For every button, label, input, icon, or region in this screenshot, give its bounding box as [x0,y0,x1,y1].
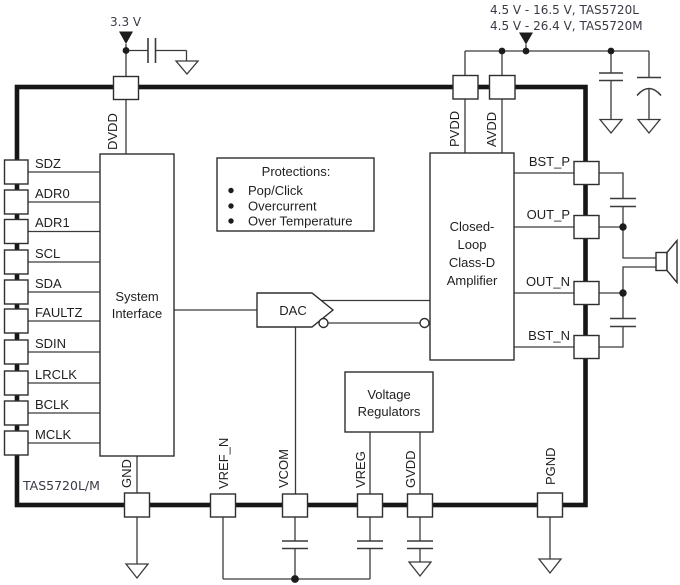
ground-icon-dvdd [176,61,198,74]
block-diagram: 3.3 V 4.5 V - 16.5 V, TAS5720L 4.5 V - 2… [0,0,680,585]
pin-pvdd [453,76,478,100]
junction-dot [291,575,299,583]
protections-title: Protections: [262,164,331,179]
speaker-cone [667,241,677,283]
pin-label-pvdd: PVDD [447,111,462,147]
capacitor-icon-pvdd1 [599,73,623,81]
voltage-regulators-label-1: Voltage [367,387,410,402]
pin-label-sda: SDA [35,276,62,291]
left-pin-labels: SDZ ADR0 ADR1 SCL SDA FAULTZ SDIN LRCLK … [35,156,82,442]
pin-label-mclk: MCLK [35,427,71,442]
pin-label-outp: OUT_P [527,207,570,222]
dac-output-bubble [319,319,328,328]
pin-label-adr1: ADR1 [35,215,70,230]
capacitor-icon-bstp [610,199,636,207]
pin-label-bclk: BCLK [35,397,69,412]
pin-label-bstp: BST_P [529,154,570,169]
dvdd-supply-label: 3.3 V [110,15,142,29]
protection-item-1: Pop/Click [248,183,303,198]
pin-label-vcom: VCOM [276,449,291,488]
ground-icon-pgnd [539,559,561,573]
system-interface-label-1: System [115,289,158,304]
pin-label-bstn: BST_N [528,328,570,343]
protection-item-2: Overcurrent [248,199,317,214]
pin-label-pgnd: PGND [543,447,558,485]
pin-outn [574,282,599,305]
amplifier-label-1: Closed- [450,219,495,234]
pin-label-dvdd: DVDD [105,113,120,150]
bullet-icon [228,203,233,208]
pin-vrefn [211,494,236,517]
junction-dot [499,48,506,55]
pin-bstn [574,336,599,359]
ground-icon-pvdd2 [638,120,660,134]
junction-dot [608,48,615,55]
pin-sda [5,280,29,304]
wire-bstn-ext [599,293,623,347]
pin-label-gnd: GND [119,459,134,488]
amplifier-label-2: Loop [458,237,487,252]
amplifier-label-3: Class-D [449,255,495,270]
ground-icon-gnd [126,564,148,578]
grounds [126,61,660,578]
pin-sdin [5,340,29,364]
pvdd-supply-label-m: 4.5 V - 26.4 V, TAS5720M [490,19,643,33]
pin-bstp [574,162,599,185]
junction-dot [619,223,626,230]
diagram-canvas: 3.3 V 4.5 V - 16.5 V, TAS5720L 4.5 V - 2… [0,0,680,585]
speaker-magnet [656,253,667,271]
pin-label-sdin: SDIN [35,336,66,351]
capacitor-icon-gvdd [407,541,433,549]
ground-icon-pvdd1 [600,120,622,134]
pin-label-outn: OUT_N [526,274,570,289]
supply-arrow-icon-pvdd [519,33,533,45]
bullet-icon [228,188,233,193]
pin-adr1 [5,220,29,244]
part-number-label: TAS5720L/M [22,478,100,493]
pin-bclk [5,401,29,425]
wire-outn-ext [599,267,656,293]
capacitor-icon-bstn [610,319,636,327]
voltage-regulators-block [345,372,433,432]
wire-outp-ext [599,227,656,258]
pin-mclk [5,431,29,455]
pin-vreg [358,494,383,517]
top-pin-labels: DVDD PVDD AVDD [105,111,499,150]
capacitor-icon-vreg [357,541,383,549]
pin-label-lrclk: LRCLK [35,367,77,382]
speaker-icon [656,241,677,283]
bullet-icon [228,218,233,223]
pvdd-supply-label-l: 4.5 V - 16.5 V, TAS5720L [490,3,639,17]
pin-label-vreg: VREG [353,451,368,488]
amp-input-bubble [420,319,429,328]
wire-amp-outputs [514,173,574,347]
pin-label-gvdd: GVDD [403,450,418,488]
pin-gvdd [408,494,433,517]
pin-label-faultz: FAULTZ [35,305,82,320]
wire-bstp-ext [599,173,623,227]
junction-dot [619,289,626,296]
pin-scl [5,250,29,274]
system-interface-label-2: Interface [112,306,163,321]
pin-label-avdd: AVDD [484,112,499,147]
pin-dvdd [114,77,139,100]
pin-avdd [490,76,516,100]
amplifier-label-4: Amplifier [447,273,498,288]
junction-dot [523,48,530,55]
voltage-regulators-label-2: Regulators [358,404,421,419]
right-pin-labels: BST_P OUT_P OUT_N BST_N [526,154,570,343]
pin-label-scl: SCL [35,246,60,261]
system-interface-block [100,154,174,456]
pin-vcom [283,494,308,517]
pin-gnd [125,493,150,517]
pin-pgnd [538,493,563,517]
ground-icon-gvdd [409,562,431,576]
pin-outp [574,216,599,239]
capacitor-icon-vcom [282,541,308,549]
pin-adr0 [5,190,29,214]
junction-dot [123,47,130,54]
capacitor-icon-dvdd [148,38,156,63]
pin-faultz [5,309,29,333]
protection-item-3: Over Temperature [248,214,353,229]
pin-lrclk [5,371,29,395]
pin-label-adr0: ADR0 [35,186,70,201]
supply-arrow-icon-dvdd [119,32,133,45]
pin-label-sdz: SDZ [35,156,61,171]
dac-label: DAC [279,303,306,318]
pin-label-vrefn: VREF_N [216,438,231,489]
bottom-pin-labels: GND VREF_N VCOM VREG GVDD PGND [119,438,558,489]
pin-sdz [5,160,29,184]
